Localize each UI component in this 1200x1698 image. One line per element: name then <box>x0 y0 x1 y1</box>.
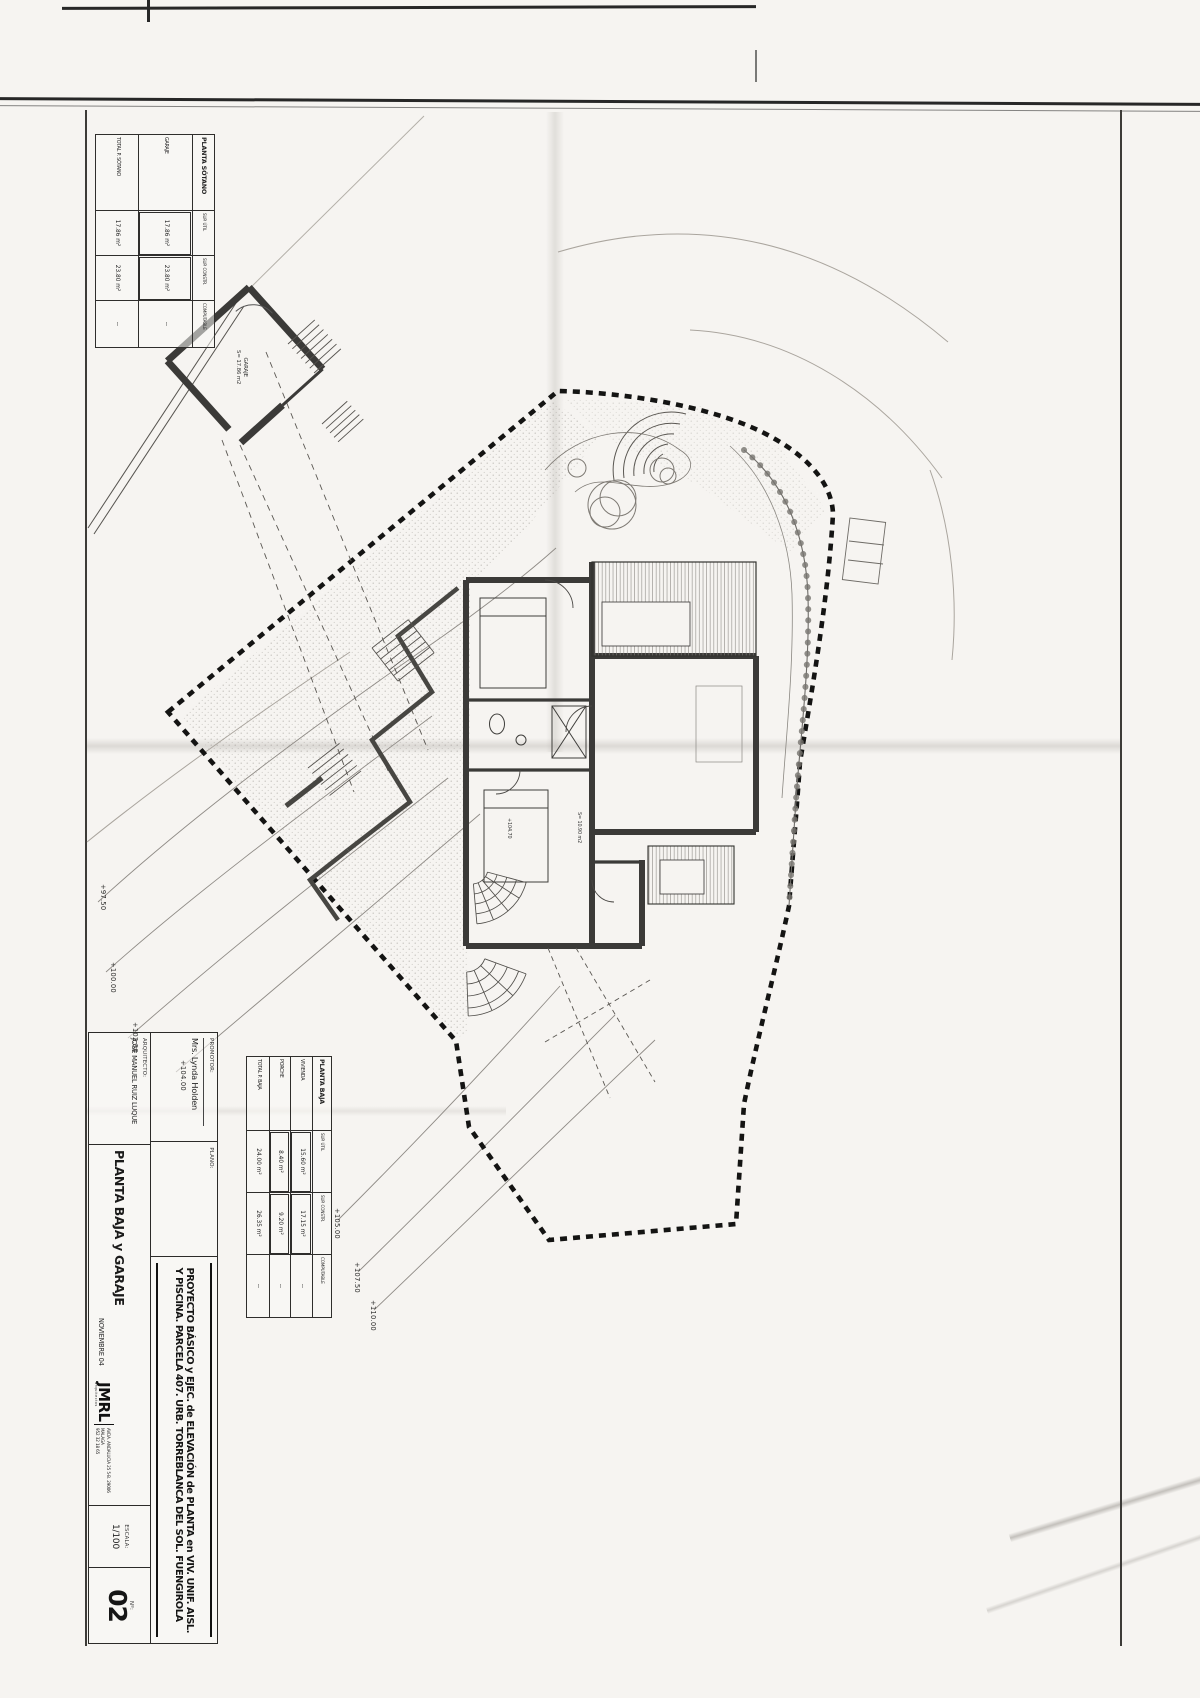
row-value: 8.40 m² <box>269 1131 291 1193</box>
row-value: 15.60 m² <box>291 1131 313 1193</box>
title-block: PROMOTOR: Mrs. Lynda Holden PLANO: PROYE… <box>88 1032 218 1644</box>
area-table-planta-sotano: PLANTA SÓTANO SUP. ÚTIL SUP. CONSTR. COM… <box>95 134 215 348</box>
arquitecto-cell: ARQUITECTO: JOSE MANUEL RUIZ LUQUE <box>89 1033 150 1145</box>
row-value: 23.80 m² <box>138 256 192 301</box>
col-header-sup-util: SUP. ÚTIL <box>312 1131 331 1193</box>
setback-dashed-lines <box>545 948 655 1098</box>
contour-label: +97.50 <box>99 884 107 910</box>
fan-stair-garden <box>467 959 526 1016</box>
table-title: PLANTA SÓTANO <box>192 135 214 211</box>
contour-label: +107.50 <box>353 1262 361 1293</box>
architect-logo-block: JMRL arquitectos AVDA. ANDALUCIA 25 5-B.… <box>89 1377 150 1505</box>
project-title-line1: PROYECTO BÁSICO y EJEC. de ELEVACIÓN de … <box>184 1267 195 1633</box>
logo-text: JMRL <box>98 1382 110 1422</box>
promotor-label: PROMOTOR: <box>208 1038 214 1136</box>
row-value: 26.35 m² <box>247 1193 269 1255</box>
table-title: PLANTA BAJA <box>312 1057 331 1131</box>
col-header-computable: COMPUTABLE <box>192 301 214 347</box>
deck-inner-rect-2 <box>660 860 704 894</box>
row-value: 17.15 m² <box>291 1193 313 1255</box>
row-value: 17.86 m² <box>138 211 192 256</box>
contour-label: +102.50 <box>131 1022 139 1053</box>
plano-name-big: PLANTA BAJA y GARAJE <box>89 1145 150 1313</box>
row-label: VIVIENDA <box>291 1057 313 1131</box>
col-header-computable: COMPUTABLE <box>312 1255 331 1317</box>
garage-stairs-lower <box>322 401 363 442</box>
row-label: GARAJE <box>138 135 192 211</box>
arquitecto-name: JOSE MANUEL RUIZ LUQUE <box>130 1038 138 1139</box>
contour-label: +105.00 <box>333 1208 341 1239</box>
logo-phone: 952 32 18 65 <box>94 1428 100 1500</box>
row-label: TOTAL P. SÓTANO <box>96 135 138 211</box>
stipple-garden-area <box>182 400 600 1038</box>
row-label: PORCHE <box>269 1057 291 1131</box>
project-title-box: PROYECTO BÁSICO y EJEC. de ELEVACIÓN de … <box>156 1263 212 1637</box>
row-value: 9.20 m² <box>269 1193 291 1255</box>
scale-value: 1/100 <box>110 1524 120 1549</box>
row-value: 23.80 m² <box>96 256 138 301</box>
garage-room-area: S= 17.86 m2 <box>235 350 242 384</box>
existing-structure <box>842 518 885 584</box>
plano-label: PLANO: <box>208 1147 214 1251</box>
garage-room-name: GARAJE <box>241 350 248 384</box>
house-room-area-label: S= 10.90 m2 <box>576 812 582 843</box>
scanned-plan-sheet: { "sheet": { "promotor_label": "PROMOTOR… <box>0 0 1200 1698</box>
contour-label: +110.00 <box>369 1300 377 1331</box>
logo-divider <box>94 1424 114 1425</box>
promotor-name: Mrs. Lynda Holden <box>190 1038 200 1136</box>
house-partitions <box>466 700 642 862</box>
plano-cell: PLANO: <box>151 1142 217 1257</box>
stipple-upper-garden <box>560 398 826 552</box>
fan-stair-house <box>473 872 526 924</box>
col-header-sup-util: SUP. ÚTIL <box>192 211 214 256</box>
sheet-number-value: 02 <box>105 1589 128 1622</box>
deck-inner-rect <box>602 602 690 646</box>
logo-address: AVDA. ANDALUCIA 25 5-B. 29006 MALAGA <box>100 1428 111 1500</box>
row-value: -- <box>269 1255 291 1317</box>
row-value: -- <box>291 1255 313 1317</box>
house-level-label: +104.70 <box>506 818 512 839</box>
project-title-line2: Y PISCINA. PARCELA 407. URB. TORREBLANCA… <box>173 1267 184 1633</box>
date-label: NOVIEMBRE 04 <box>89 1313 150 1377</box>
row-value: 24.00 m² <box>247 1131 269 1193</box>
sheet-number-cell: Nº: 02 <box>89 1567 150 1643</box>
arquitecto-label: ARQUITECTO: <box>141 1038 147 1139</box>
scale-cell: ESCALA: 1/100 <box>89 1505 150 1567</box>
contour-label: +100.00 <box>109 962 117 993</box>
row-value: -- <box>247 1255 269 1317</box>
col-header-sup-constr: SUP. CONSTR. <box>192 256 214 301</box>
row-label: TOTAL P. BAJA <box>247 1057 269 1131</box>
contour-label: +104.00 <box>179 1060 187 1091</box>
col-header-sup-constr: SUP. CONSTR. <box>312 1193 331 1255</box>
row-value: -- <box>96 301 138 347</box>
garage-room-label: GARAJE S= 17.86 m2 <box>235 350 249 384</box>
row-value: 17.86 m² <box>96 211 138 256</box>
area-table-planta-baja: PLANTA BAJA SUP. ÚTIL SUP. CONSTR. COMPU… <box>246 1056 332 1318</box>
scale-label: ESCALA: <box>123 1524 129 1548</box>
row-value: -- <box>138 301 192 347</box>
